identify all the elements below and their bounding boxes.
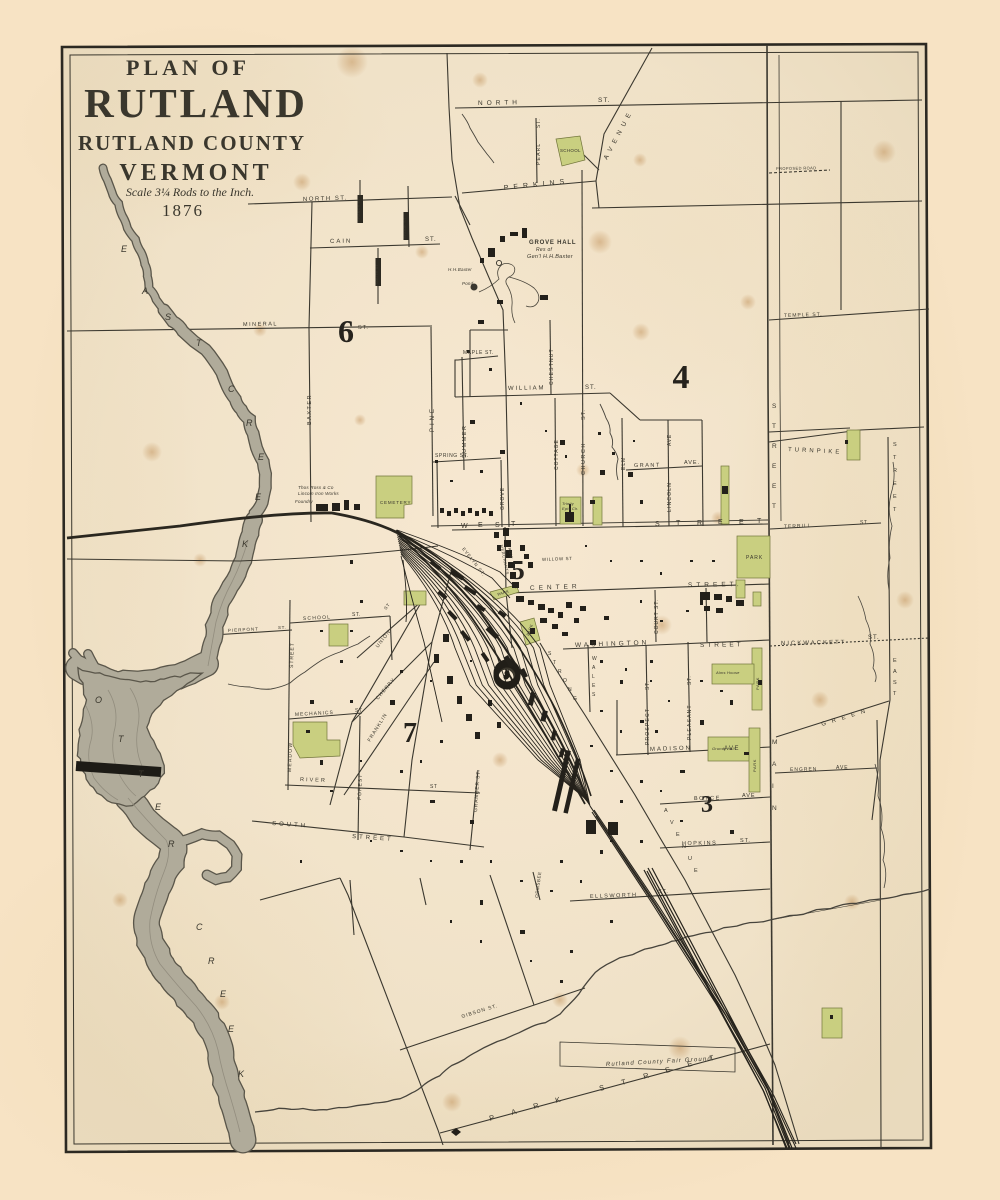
svg-text:3: 3 [701, 792, 713, 818]
svg-text:SOUTH ST: SOUTH ST [375, 263, 379, 284]
svg-text:R: R [168, 839, 175, 849]
svg-text:E: E [772, 463, 777, 470]
svg-text:NICKWACKETT: NICKWACKETT [781, 640, 847, 647]
svg-text:SCHOOL: SCHOOL [560, 148, 581, 153]
svg-text:ST: ST [430, 784, 438, 790]
svg-text:E: E [694, 868, 698, 874]
svg-text:O: O [95, 695, 102, 705]
svg-text:E: E [255, 492, 262, 502]
svg-text:AVE: AVE [667, 434, 673, 446]
svg-text:RUTLAND: RUTLAND [84, 80, 308, 126]
svg-text:ENGREN: ENGREN [790, 767, 818, 773]
svg-text:ST.: ST. [278, 625, 286, 630]
svg-text:COURT ST.: COURT ST. [654, 599, 660, 634]
svg-text:5: 5 [511, 555, 525, 585]
svg-text:ST.: ST. [598, 97, 610, 104]
svg-text:E: E [676, 832, 680, 838]
svg-text:ELM: ELM [621, 457, 627, 470]
svg-text:STREET.: STREET. [688, 581, 743, 589]
svg-text:K: K [238, 1069, 245, 1079]
svg-text:RIVER: RIVER [300, 777, 327, 784]
svg-text:Foundry: Foundry [295, 499, 313, 504]
svg-text:LINCOLN: LINCOLN [667, 482, 673, 512]
svg-text:VERMONT: VERMONT [119, 160, 272, 186]
svg-text:Grundy hall: Grundy hall [712, 746, 735, 751]
svg-text:N: N [772, 805, 777, 812]
svg-text:PROPOSED ROAD: PROPOSED ROAD [776, 165, 817, 171]
svg-text:A: A [893, 669, 897, 675]
svg-text:E: E [893, 658, 897, 664]
svg-text:L: L [592, 674, 595, 680]
svg-text:E: E [772, 483, 777, 490]
svg-text:WILLIAM: WILLIAM [508, 385, 545, 392]
svg-text:ST.: ST. [658, 889, 669, 895]
svg-text:ST.: ST. [868, 635, 880, 641]
svg-text:RUTLAND COUNTY: RUTLAND COUNTY [78, 131, 306, 155]
svg-text:PLAN OF: PLAN OF [126, 55, 250, 80]
svg-text:BAXTER: BAXTER [307, 394, 313, 425]
svg-text:O: O [563, 678, 567, 684]
svg-text:Thos Ross & Co: Thos Ross & Co [298, 485, 334, 490]
svg-text:ST.: ST. [740, 838, 751, 844]
svg-text:AVE.: AVE. [684, 460, 700, 466]
svg-text:ST.: ST. [860, 520, 869, 526]
svg-text:SUMMER: SUMMER [462, 425, 468, 458]
svg-text:E: E [121, 244, 128, 254]
svg-text:MEADOW: MEADOW [287, 742, 294, 772]
svg-text:Scale 3¼ Rods to the Inch.: Scale 3¼ Rods to the Inch. [126, 185, 254, 199]
svg-text:R: R [208, 956, 215, 966]
svg-text:R: R [246, 418, 253, 428]
svg-text:N: N [682, 844, 686, 850]
svg-text:NORTH: NORTH [478, 99, 521, 107]
svg-text:R: R [558, 669, 562, 675]
svg-text:Res of: Res of [536, 247, 553, 253]
svg-text:GROVE HALL: GROVE HALL [529, 240, 576, 246]
svg-text:N: N [568, 687, 572, 693]
svg-text:E: E [478, 522, 483, 529]
svg-text:PINE: PINE [430, 406, 436, 432]
svg-text:K: K [242, 539, 249, 549]
svg-text:ST.: ST. [536, 118, 542, 128]
svg-text:I: I [772, 783, 774, 790]
svg-text:PARK: PARK [752, 759, 757, 772]
svg-text:4: 4 [673, 359, 690, 396]
svg-text:COTTAGE: COTTAGE [554, 439, 560, 470]
svg-text:TERRILL: TERRILL [784, 523, 812, 530]
svg-text:WILLOW ST: WILLOW ST [542, 556, 573, 562]
svg-text:W: W [461, 523, 468, 530]
svg-text:ST.: ST. [585, 385, 597, 391]
svg-text:C: C [228, 384, 235, 394]
svg-text:Gen'l H.H.Baxter: Gen'l H.H.Baxter [527, 254, 574, 260]
svg-text:PEARL: PEARL [536, 143, 542, 165]
svg-text:U: U [688, 856, 692, 862]
svg-text:E: E [739, 519, 744, 526]
svg-text:PROSPECT: PROSPECT [645, 708, 651, 745]
svg-text:T: T [511, 521, 516, 528]
svg-text:CHESTNUT: CHESTNUT [549, 348, 555, 385]
svg-text:S: S [893, 442, 897, 448]
svg-text:ST.: ST. [687, 675, 693, 685]
svg-text:CHURCH: CHURCH [581, 442, 587, 475]
svg-text:S: S [165, 312, 171, 322]
svg-text:T: T [772, 423, 776, 430]
svg-text:S: S [893, 680, 897, 686]
svg-text:T: T [676, 520, 681, 527]
svg-text:GROVE: GROVE [500, 487, 506, 510]
svg-text:G: G [573, 696, 577, 702]
svg-text:W: W [592, 656, 597, 662]
svg-text:R: R [697, 520, 702, 527]
svg-text:S: S [495, 522, 500, 529]
svg-text:M: M [772, 739, 777, 746]
svg-text:Pond: Pond [462, 281, 474, 286]
svg-text:T: T [772, 503, 776, 510]
svg-text:T: T [757, 518, 762, 525]
svg-text:R: R [893, 468, 897, 474]
svg-text:AVE: AVE [836, 765, 849, 771]
svg-text:E: E [893, 494, 897, 500]
svg-text:BROOK ST: BROOK ST [403, 217, 407, 238]
svg-text:1876: 1876 [162, 201, 204, 220]
svg-text:ST.: ST. [355, 708, 364, 714]
svg-text:A: A [664, 808, 668, 814]
svg-text:ST.: ST. [645, 680, 651, 690]
svg-text:ST.: ST. [425, 237, 437, 243]
svg-text:PARK: PARK [755, 677, 760, 690]
svg-text:ST.: ST. [581, 409, 587, 420]
svg-text:STREET: STREET [700, 641, 744, 649]
svg-text:FOREST: FOREST [357, 774, 364, 800]
svg-text:H.H.Baxter: H.H.Baxter [448, 267, 472, 272]
svg-text:GRANT: GRANT [634, 463, 661, 469]
svg-text:A: A [772, 761, 777, 768]
svg-text:Epis Ch.: Epis Ch. [562, 506, 579, 511]
svg-text:E: E [893, 481, 897, 487]
svg-text:MINERAL: MINERAL [243, 321, 278, 328]
svg-text:T: T [553, 660, 556, 666]
svg-text:7: 7 [403, 718, 417, 749]
svg-text:PARK: PARK [746, 555, 763, 561]
svg-text:S: S [772, 403, 777, 410]
svg-text:PLEASANT: PLEASANT [687, 704, 693, 740]
svg-text:AVE: AVE [742, 793, 756, 799]
svg-text:E: E [220, 989, 227, 999]
svg-text:STREET: STREET [289, 642, 296, 668]
svg-text:E: E [718, 519, 723, 526]
svg-text:CAIN: CAIN [330, 239, 352, 245]
svg-text:ST.: ST. [358, 325, 369, 331]
svg-text:6: 6 [338, 313, 354, 349]
svg-text:CEMETERY: CEMETERY [380, 500, 411, 505]
svg-text:Alms House: Alms House [715, 670, 740, 675]
svg-text:S: S [655, 521, 660, 528]
svg-text:MAPLE ST.: MAPLE ST. [463, 350, 494, 356]
svg-text:E: E [228, 1024, 235, 1034]
svg-text:E: E [258, 452, 265, 462]
svg-text:E: E [155, 802, 162, 812]
svg-text:ST.: ST. [352, 612, 361, 618]
svg-text:Lincoln Iron Works: Lincoln Iron Works [298, 491, 339, 496]
svg-text:C: C [196, 922, 203, 932]
svg-text:A: A [141, 286, 148, 296]
svg-text:HOPKINS: HOPKINS [682, 840, 717, 847]
svg-text:V: V [670, 820, 674, 826]
svg-text:R: R [772, 443, 777, 450]
svg-text:BRANCH ST: BRANCH ST [357, 198, 361, 222]
